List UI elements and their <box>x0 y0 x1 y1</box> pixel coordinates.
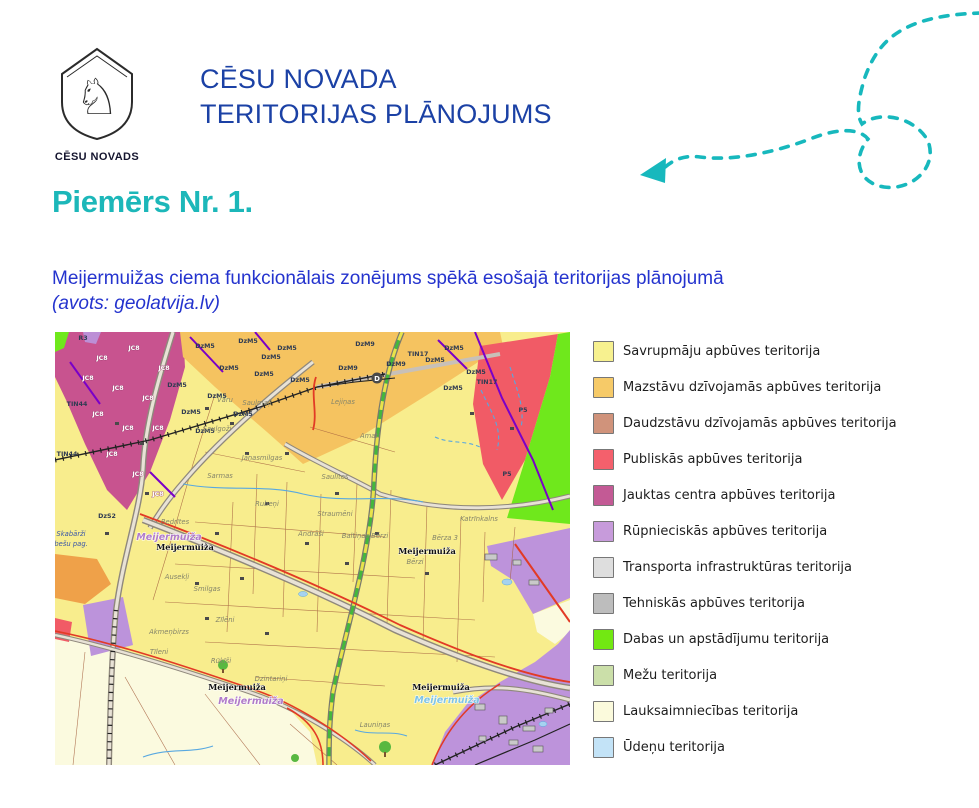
place-label: Straumēni <box>317 510 352 518</box>
legend-label: Lauksaimniecības teritorija <box>623 704 798 719</box>
coat-of-arms-icon: ♘ <box>54 42 140 142</box>
place-label: Bedrītes <box>161 518 190 526</box>
legend-item: Dabas un apstādījumu teritorija <box>593 628 897 650</box>
road-marker: D <box>372 373 383 384</box>
settlement-label: Meijermuiža <box>156 542 214 552</box>
zone-code-label: JC8 <box>105 451 117 458</box>
svg-text:♘: ♘ <box>75 68 120 126</box>
zone-code-label: DzM5 <box>167 382 187 389</box>
legend-label: Publiskās apbūves teritorija <box>623 452 802 467</box>
zone-code-label: TIN17 <box>477 379 498 386</box>
legend-swatch <box>593 485 614 506</box>
legend-item: Mežu teritorija <box>593 664 897 686</box>
settlement-halo-label: Meijermuiža <box>136 532 201 543</box>
legend-label: Transporta infrastruktūras teritorija <box>623 560 852 575</box>
page-title: CĒSU NOVADA TERITORIJAS PLĀNOJUMS <box>200 62 552 132</box>
zone-code-label: DzM5 <box>254 371 274 378</box>
zone-code-label: TIN17 <box>408 351 429 358</box>
legend-swatch <box>593 737 614 758</box>
legend-label: Daudzstāvu dzīvojamās apbūves teritorija <box>623 416 897 431</box>
settlement-label: Meijermuiža <box>412 682 470 692</box>
zone-code-label: TIN44 <box>67 401 88 408</box>
map-legend: Savrupmāju apbūves teritorijaMazstāvu dz… <box>593 340 897 758</box>
map-caption: Meijermuižas ciema funkcionālais zonējum… <box>52 266 724 316</box>
legend-swatch <box>593 557 614 578</box>
legend-label: Rūpnieciskās apbūves teritorija <box>623 524 827 539</box>
zone-code-label: TIN44 <box>57 451 78 458</box>
map-caption-source: (avots: geolatvija.lv) <box>52 291 724 316</box>
zone-code-label: DzS2 <box>98 513 116 520</box>
page-title-line1: CĒSU NOVADA <box>200 62 552 97</box>
zone-code-label: JC8 <box>141 395 153 402</box>
legend-swatch <box>593 449 614 470</box>
zone-code-label: P5 <box>519 407 528 414</box>
legend-swatch <box>593 701 614 722</box>
pond-2 <box>502 579 512 585</box>
legend-item: Tehniskās apbūves teritorija <box>593 592 897 614</box>
place-label: Zīlēni <box>215 616 235 624</box>
place-label: Baltiņas Bērzi <box>342 532 389 540</box>
zone-code-label: DzM5 <box>219 365 239 372</box>
legend-item: Lauksaimniecības teritorija <box>593 700 897 722</box>
zone-code-label: JC8 <box>121 425 133 432</box>
pond <box>299 592 308 597</box>
zone-code-label: DzM9 <box>355 341 375 348</box>
zoning-map: D DzM5DzM5DzM5DzM5DzM5DzM5DzM5DzM5DzM5Dz… <box>55 332 570 765</box>
zone-code-label: JC8 <box>151 491 163 498</box>
legend-item: Ūdeņu teritorija <box>593 736 897 758</box>
settlement-halo-label: Meijermuiža <box>218 696 283 707</box>
zone-code-label: JC8 <box>151 425 163 432</box>
zone-code-label: DzM5 <box>238 338 258 345</box>
legend-label: Dabas un apstādījumu teritorija <box>623 632 829 647</box>
place-label: Skabārži <box>56 530 85 538</box>
zone-code-label: DzM9 <box>338 365 358 372</box>
place-label: Ausekļi <box>164 573 190 581</box>
place-label: Andrāši <box>297 530 324 538</box>
place-label: Launiņas <box>360 721 391 729</box>
zone-code-label: JC8 <box>111 385 123 392</box>
zone-code-label: DzM5 <box>425 357 445 364</box>
legend-label: Ūdeņu teritorija <box>623 740 725 755</box>
municipality-logo: ♘ CĒSU NOVADS <box>54 42 140 163</box>
place-label: Saulmaļi <box>242 399 271 407</box>
settlement-halo-label: Meijermuiža <box>414 695 479 706</box>
zone-code-label: DzM5 <box>181 409 201 416</box>
map-caption-line1: Meijermuižas ciema funkcionālais zonējum… <box>52 266 724 291</box>
legend-item: Transporta infrastruktūras teritorija <box>593 556 897 578</box>
place-label: abešu pag. <box>55 540 88 548</box>
zoning-map-svg: D DzM5DzM5DzM5DzM5DzM5DzM5DzM5DzM5DzM5Dz… <box>55 332 570 765</box>
legend-label: Mazstāvu dzīvojamās apbūves teritorija <box>623 380 881 395</box>
legend-label: Jauktas centra apbūves teritorija <box>623 488 835 503</box>
logo-caption: CĒSU NOVADS <box>54 151 140 163</box>
page-title-line2: TERITORIJAS PLĀNOJUMS <box>200 97 552 132</box>
place-label: Rubeņi <box>255 500 279 508</box>
legend-label: Mežu teritorija <box>623 668 717 683</box>
zone-code-label: JC8 <box>131 471 143 478</box>
legend-item: Mazstāvu dzīvojamās apbūves teritorija <box>593 376 897 398</box>
place-label: Katrīnkalns <box>460 515 498 523</box>
legend-swatch <box>593 521 614 542</box>
zone-code-label: DzM5 <box>277 345 297 352</box>
place-label: Saulgoži <box>203 425 232 433</box>
zone-code-label: JC8 <box>127 345 139 352</box>
place-label: Bērza 3 <box>432 534 458 542</box>
legend-swatch <box>593 377 614 398</box>
place-label: Bērzi <box>406 558 423 566</box>
legend-swatch <box>593 629 614 650</box>
zone-code-label: DzM5 <box>290 377 310 384</box>
legend-item: Publiskās apbūves teritorija <box>593 448 897 470</box>
legend-item: Savrupmāju apbūves teritorija <box>593 340 897 362</box>
zone-code-label: DzM5 <box>195 343 215 350</box>
place-label: Vāru <box>217 396 233 404</box>
legend-label: Tehniskās apbūves teritorija <box>623 596 805 611</box>
dotted-arrow-decoration <box>630 0 979 200</box>
place-label: Saulītes <box>322 473 349 481</box>
place-label: Jāņasmilgas <box>240 454 283 462</box>
page-root: ♘ CĒSU NOVADS CĒSU NOVADA TERITORIJAS PL… <box>0 0 979 808</box>
dotted-curve <box>664 13 979 187</box>
legend-label: Savrupmāju apbūves teritorija <box>623 344 820 359</box>
place-label: Amati <box>359 432 380 440</box>
zone-code-label: DzM5 <box>443 385 463 392</box>
legend-item: Jauktas centra apbūves teritorija <box>593 484 897 506</box>
place-label: Tīleni <box>150 648 168 656</box>
settlement-label: Meijermuiža <box>208 682 266 692</box>
zone-code-label: DzM9 <box>386 361 406 368</box>
zone-code-label: DzM5 <box>261 354 281 361</box>
legend-swatch <box>593 593 614 614</box>
zone-code-label: DzM5 <box>466 369 486 376</box>
settlement-label: Meijermuiža <box>398 546 456 556</box>
zone-code-label: JC8 <box>91 411 103 418</box>
section-heading: Piemērs Nr. 1. <box>52 184 253 220</box>
legend-swatch <box>593 665 614 686</box>
svg-text:D: D <box>374 375 380 383</box>
zone-code-label: R3 <box>78 335 87 342</box>
zone-code-label: DzM5 <box>233 411 253 418</box>
zone-code-label: DzM5 <box>444 345 464 352</box>
legend-swatch <box>593 341 614 362</box>
place-label: Sarmas <box>207 472 233 480</box>
zone-code-label: P5 <box>503 471 512 478</box>
legend-item: Rūpnieciskās apbūves teritorija <box>593 520 897 542</box>
zone-code-label: JC8 <box>157 365 169 372</box>
pond-3 <box>539 722 547 727</box>
place-label: Lejiņas <box>331 398 355 406</box>
legend-item: Daudzstāvu dzīvojamās apbūves teritorija <box>593 412 897 434</box>
place-label: Smilgas <box>194 585 221 593</box>
zone-code-label: JC8 <box>95 355 107 362</box>
place-label: Rūķīši <box>211 657 231 665</box>
arrowhead-icon <box>640 158 666 183</box>
zone-code-label: JC8 <box>81 375 93 382</box>
legend-swatch <box>593 413 614 434</box>
place-label: Akmeņbirzs <box>148 628 189 636</box>
